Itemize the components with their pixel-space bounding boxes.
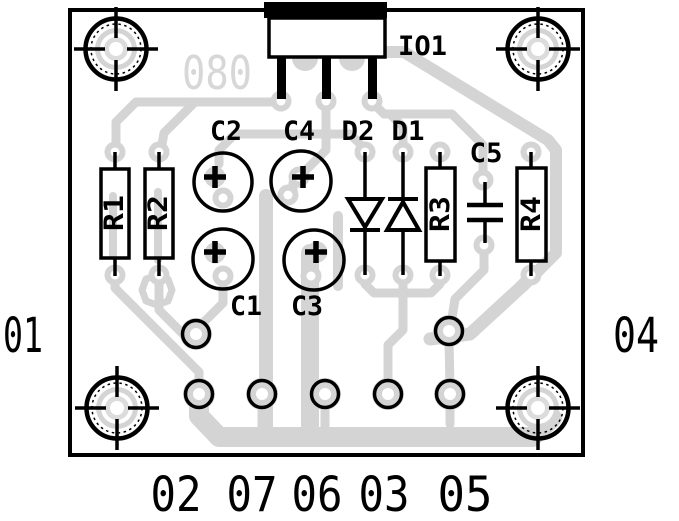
pcb-diagram-canvas: 080: [0, 0, 679, 521]
component-d1: D1: [387, 116, 425, 275]
pin-label-right: 04: [613, 308, 659, 364]
pin-label-bottom-3: 06: [292, 467, 343, 521]
r2-label: R2: [143, 195, 174, 231]
d1-label: D1: [392, 116, 425, 147]
r4-label: R4: [516, 196, 547, 232]
pin-label-bottom-4: 03: [359, 467, 410, 521]
c5-plates: [467, 205, 503, 220]
c2-label: C2: [210, 116, 242, 147]
pin-label-left: 01: [3, 308, 43, 364]
pin-label-bottom-1: 02: [151, 467, 202, 521]
c1-label: C1: [230, 291, 262, 322]
d2-label: D2: [342, 116, 375, 147]
c3-label: C3: [291, 291, 323, 322]
io1-heatsink-tab: [264, 2, 387, 18]
d1-triangle: [387, 202, 419, 230]
component-d2: D2: [342, 116, 383, 275]
component-c5: C5: [467, 138, 503, 243]
component-r3: R3: [425, 152, 456, 276]
wire-pads: [180, 315, 466, 410]
component-r1: R1: [99, 152, 130, 276]
component-r4: R4: [516, 152, 547, 276]
c2-plus-mark: [204, 166, 226, 188]
io1-label: IO1: [398, 31, 447, 62]
component-r2: R2: [143, 152, 174, 276]
board-id-text: 080: [182, 46, 252, 100]
pcb-layout-diagram: 080: [0, 0, 679, 521]
io1-body: [269, 18, 385, 57]
pin-label-bottom-5: 05: [438, 467, 493, 521]
pin-label-bottom-2: 07: [227, 467, 278, 521]
component-io1: IO1: [264, 2, 447, 99]
r3-label: R3: [425, 196, 456, 232]
d2-triangle: [348, 199, 382, 227]
c4-label: C4: [283, 116, 315, 147]
c5-label: C5: [470, 138, 503, 169]
r1-label: R1: [99, 195, 130, 231]
